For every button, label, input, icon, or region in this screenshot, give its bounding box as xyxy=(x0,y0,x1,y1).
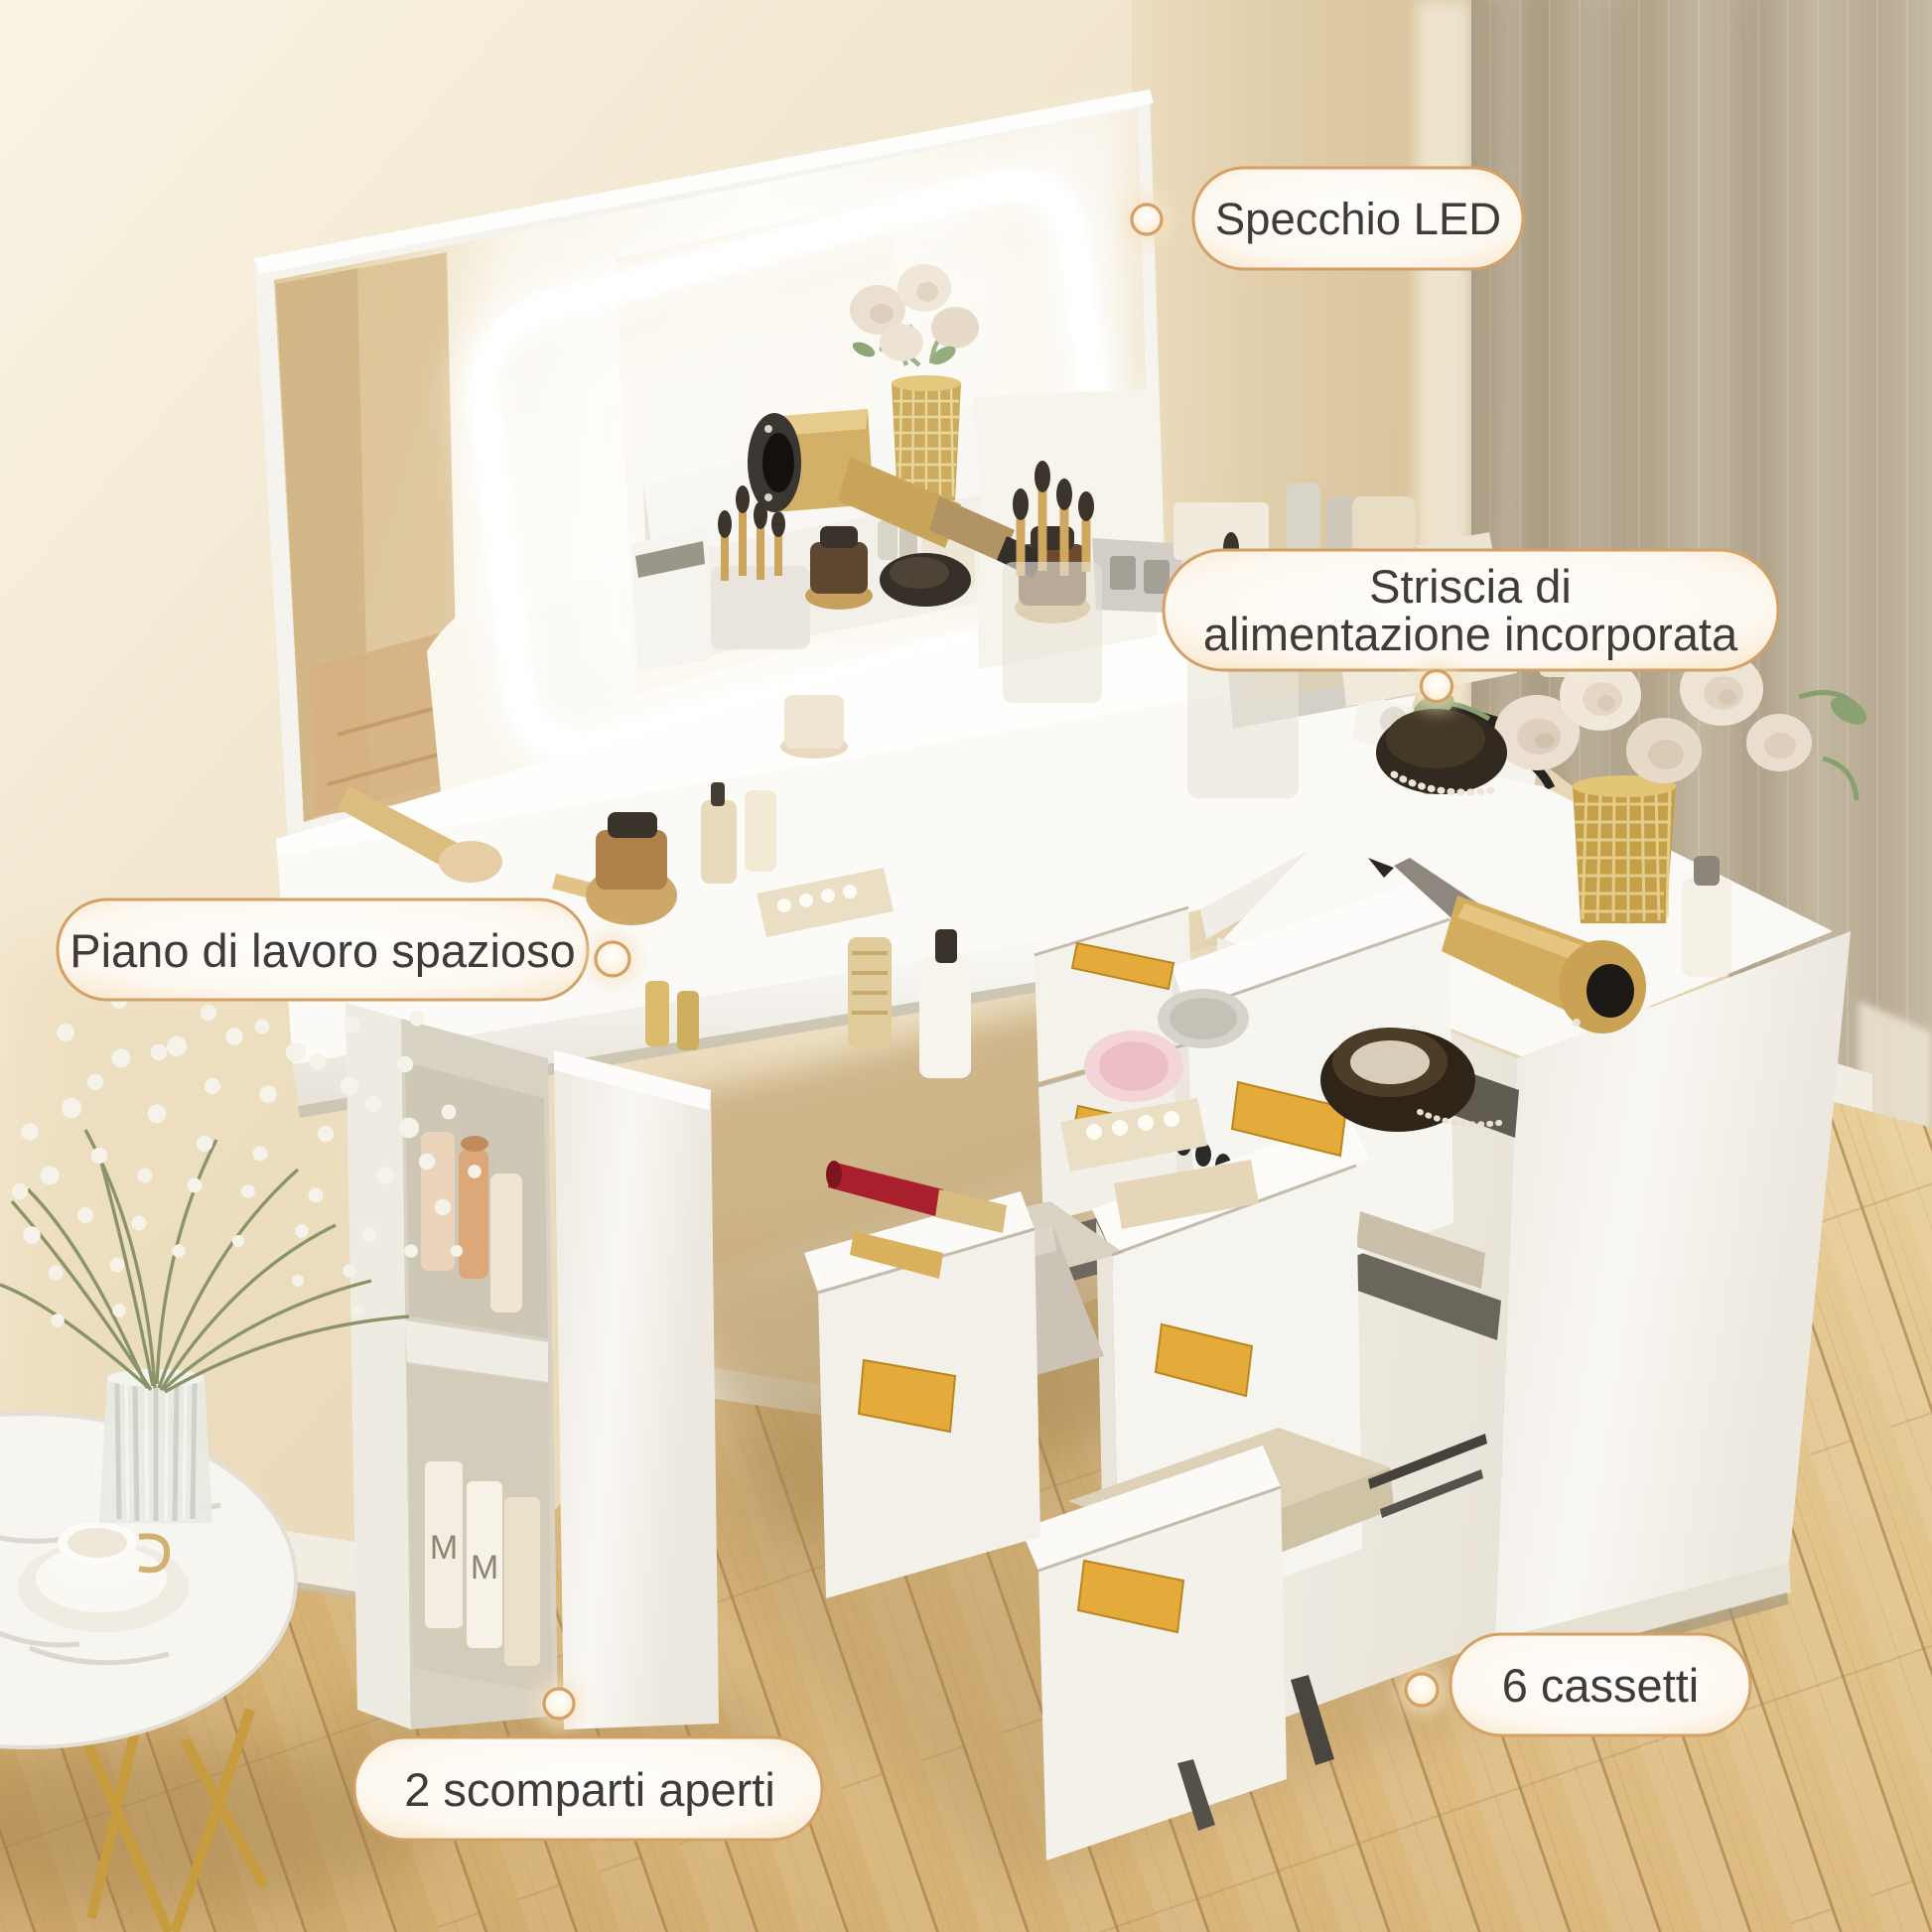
svg-text:M: M xyxy=(430,1529,458,1567)
svg-text:Striscia di: Striscia di xyxy=(1369,560,1572,613)
svg-text:Specchio LED: Specchio LED xyxy=(1215,194,1501,244)
svg-text:M: M xyxy=(471,1549,498,1587)
svg-text:Piano di lavoro spazioso: Piano di lavoro spazioso xyxy=(69,924,575,977)
svg-text:2 scomparti aperti: 2 scomparti aperti xyxy=(404,1763,775,1816)
svg-text:alimentazione incorporata: alimentazione incorporata xyxy=(1203,608,1738,660)
svg-text:6 cassetti: 6 cassetti xyxy=(1502,1659,1700,1712)
